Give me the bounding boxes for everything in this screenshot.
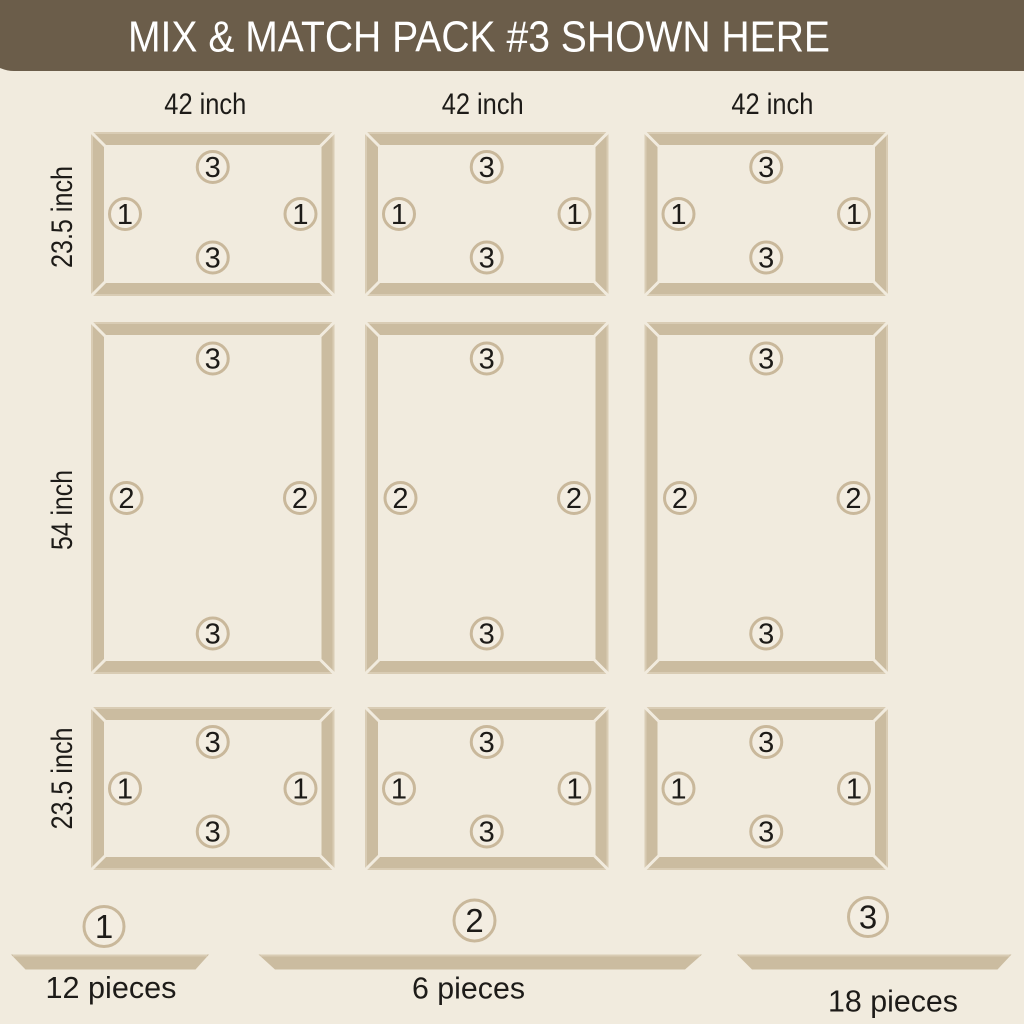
svg-text:3: 3	[758, 243, 774, 275]
svg-text:2: 2	[672, 483, 688, 515]
svg-text:23.5 inch: 23.5 inch	[46, 728, 79, 830]
svg-text:3: 3	[479, 344, 495, 376]
svg-text:3: 3	[758, 619, 774, 651]
svg-text:3: 3	[758, 152, 774, 184]
svg-text:3: 3	[758, 344, 774, 376]
svg-text:1: 1	[117, 774, 133, 806]
svg-text:6 pieces: 6 pieces	[412, 971, 525, 1006]
svg-text:MIX & MATCH PACK #3 SHOWN HERE: MIX & MATCH PACK #3 SHOWN HERE	[128, 13, 830, 62]
svg-text:3: 3	[859, 898, 877, 935]
svg-text:1: 1	[292, 774, 308, 806]
svg-text:3: 3	[479, 243, 495, 275]
svg-text:54 inch: 54 inch	[46, 470, 79, 550]
svg-text:1: 1	[391, 199, 407, 231]
svg-text:3: 3	[205, 619, 221, 651]
svg-text:1: 1	[117, 199, 133, 231]
svg-text:1: 1	[566, 774, 582, 806]
svg-text:2: 2	[392, 483, 408, 515]
svg-text:1: 1	[846, 774, 862, 806]
svg-text:1: 1	[846, 199, 862, 231]
svg-text:1: 1	[391, 774, 407, 806]
svg-text:3: 3	[205, 243, 221, 275]
svg-text:3: 3	[205, 152, 221, 184]
svg-text:2: 2	[566, 483, 582, 515]
svg-text:42 inch: 42 inch	[442, 88, 524, 121]
svg-text:1: 1	[670, 199, 686, 231]
svg-text:42 inch: 42 inch	[164, 88, 246, 121]
svg-text:3: 3	[479, 152, 495, 184]
svg-text:2: 2	[118, 483, 134, 515]
svg-text:3: 3	[758, 817, 774, 849]
svg-text:3: 3	[758, 727, 774, 759]
svg-text:3: 3	[479, 727, 495, 759]
svg-text:2: 2	[292, 483, 308, 515]
svg-text:42 inch: 42 inch	[731, 88, 813, 121]
svg-text:3: 3	[479, 619, 495, 651]
svg-text:18 pieces: 18 pieces	[828, 984, 958, 1019]
svg-text:1: 1	[95, 908, 113, 945]
svg-text:3: 3	[479, 817, 495, 849]
svg-text:1: 1	[566, 199, 582, 231]
svg-text:12 pieces: 12 pieces	[46, 970, 177, 1005]
svg-text:1: 1	[670, 774, 686, 806]
svg-text:3: 3	[205, 817, 221, 849]
svg-text:1: 1	[292, 199, 308, 231]
svg-text:2: 2	[465, 902, 483, 939]
svg-text:3: 3	[205, 344, 221, 376]
svg-text:2: 2	[845, 483, 861, 515]
svg-text:23.5 inch: 23.5 inch	[46, 166, 79, 268]
svg-text:3: 3	[205, 727, 221, 759]
